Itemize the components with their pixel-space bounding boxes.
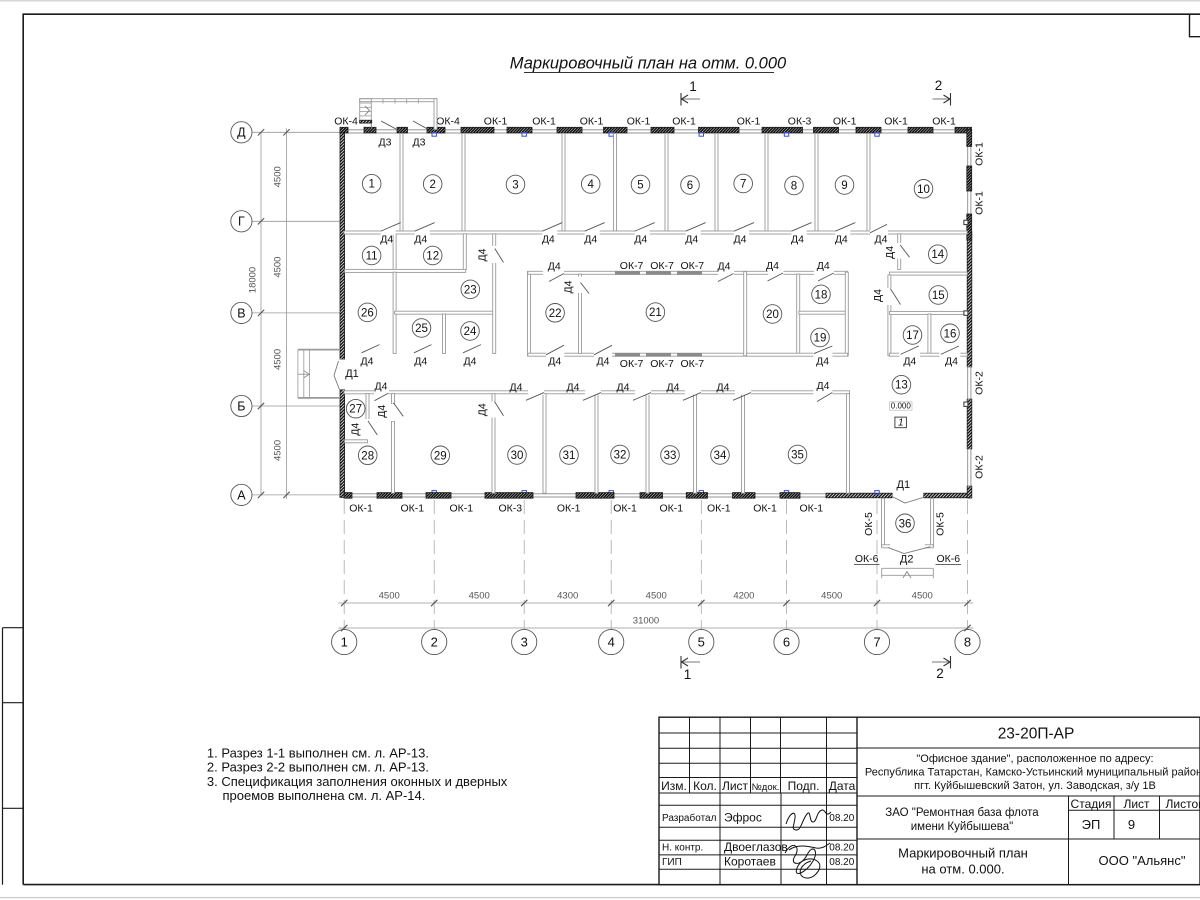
svg-text:ОК-3: ОК-3: [788, 115, 812, 127]
svg-text:Д4: Д4: [414, 355, 427, 367]
svg-text:9: 9: [1128, 817, 1135, 832]
svg-text:21: 21: [649, 307, 662, 319]
svg-text:Д1: Д1: [345, 368, 359, 380]
svg-text:Лист: Лист: [1123, 797, 1150, 811]
svg-text:Кол.: Кол.: [693, 779, 717, 793]
svg-text:Б: Б: [237, 399, 245, 413]
svg-text:ОК-1: ОК-1: [753, 503, 777, 515]
svg-text:22: 22: [549, 308, 562, 320]
svg-text:Изм.: Изм.: [661, 779, 687, 793]
svg-text:18: 18: [815, 289, 828, 301]
svg-text:Д4: Д4: [361, 355, 374, 367]
svg-text:Маркировочный план на отм. 0.0: Маркировочный план на отм. 0.000: [510, 55, 787, 73]
svg-text:7: 7: [873, 635, 880, 650]
svg-text:15: 15: [932, 290, 945, 302]
svg-text:Д4: Д4: [903, 356, 916, 368]
svg-text:4500: 4500: [273, 440, 284, 461]
svg-text:4300: 4300: [557, 591, 578, 602]
svg-text:ОК-1: ОК-1: [349, 503, 373, 515]
svg-text:4500: 4500: [273, 257, 284, 278]
svg-text:Д4: Д4: [414, 234, 427, 246]
svg-text:6: 6: [687, 180, 693, 192]
svg-text:23: 23: [464, 284, 477, 296]
svg-text:Д4: Д4: [617, 381, 630, 393]
svg-text:20: 20: [766, 309, 779, 321]
svg-text:проемов выполнена см. л. АР-14: проемов выполнена см. л. АР-14.: [223, 788, 426, 803]
svg-text:ОК-1: ОК-1: [974, 191, 986, 215]
svg-text:Эфрос: Эфрос: [724, 811, 762, 825]
svg-text:Д3: Д3: [413, 136, 426, 148]
svg-text:Н. контр.: Н. контр.: [662, 842, 703, 853]
svg-text:19: 19: [814, 333, 827, 345]
svg-text:Д4: Д4: [817, 380, 830, 392]
svg-text:Д: Д: [237, 126, 246, 140]
svg-text:28: 28: [361, 450, 374, 462]
svg-text:32: 32: [614, 450, 627, 462]
svg-text:Д4: Д4: [380, 234, 393, 246]
svg-text:Д4: Д4: [791, 234, 804, 246]
svg-text:ОК-1: ОК-1: [627, 115, 651, 127]
svg-text:1: 1: [898, 417, 904, 428]
svg-text:Д4: Д4: [464, 356, 477, 368]
svg-text:26: 26: [361, 307, 374, 319]
svg-text:ОК-1: ОК-1: [484, 115, 508, 127]
svg-text:Д4: Д4: [685, 234, 698, 246]
svg-text:Разработал: Разработал: [662, 812, 717, 824]
svg-text:4: 4: [587, 179, 594, 191]
svg-text:33: 33: [664, 450, 677, 462]
svg-text:Д4: Д4: [875, 234, 888, 246]
svg-text:№док.: №док.: [752, 782, 780, 793]
svg-text:ОК-2: ОК-2: [974, 455, 986, 479]
svg-text:2: 2: [429, 179, 435, 191]
svg-text:8: 8: [964, 635, 971, 650]
svg-text:Республика Татарстан, Камско-У: Республика Татарстан, Камско-Устьинский …: [865, 767, 1200, 779]
svg-text:Д2: Д2: [900, 554, 914, 566]
svg-text:ОК-6: ОК-6: [855, 553, 879, 565]
svg-text:18000: 18000: [248, 267, 259, 293]
svg-text:ОК-5: ОК-5: [935, 512, 947, 536]
svg-text:ОК-1: ОК-1: [799, 503, 823, 515]
svg-text:1. Разрез 1-1 выполнен см. л.: 1. Разрез 1-1 выполнен см. л. АР-13.: [207, 746, 429, 761]
svg-text:5: 5: [637, 180, 643, 192]
svg-text:Д4: Д4: [766, 260, 779, 272]
svg-text:ЭП: ЭП: [1082, 817, 1101, 832]
svg-text:8: 8: [791, 181, 797, 193]
svg-text:Д4: Д4: [817, 260, 830, 272]
svg-text:Стадия: Стадия: [1071, 797, 1112, 811]
svg-text:5: 5: [698, 635, 705, 650]
svg-text:Д4: Д4: [567, 381, 580, 393]
svg-text:1: 1: [689, 79, 697, 94]
svg-text:31000: 31000: [633, 616, 659, 627]
svg-text:ОК-2: ОК-2: [974, 371, 986, 395]
svg-text:ОК-1: ОК-1: [580, 115, 604, 127]
svg-text:4500: 4500: [912, 591, 933, 602]
svg-text:ООО "Альянс": ООО "Альянс": [1099, 853, 1186, 868]
svg-text:30: 30: [511, 450, 524, 462]
svg-text:ОК-1: ОК-1: [737, 115, 761, 127]
svg-text:ОК-1: ОК-1: [449, 503, 473, 515]
svg-text:"Офисное здание", расположенно: "Офисное здание", расположенное по адрес…: [916, 753, 1153, 765]
svg-text:13: 13: [895, 380, 908, 392]
svg-text:ОК-6: ОК-6: [936, 553, 960, 565]
svg-text:12: 12: [426, 251, 439, 263]
svg-text:ГИП: ГИП: [662, 857, 682, 868]
svg-text:2. Разрез 2-2 выполнен см. л.: 2. Разрез 2-2 выполнен см. л. АР-13.: [207, 760, 429, 775]
svg-text:24: 24: [464, 326, 477, 338]
svg-text:ОК-1: ОК-1: [400, 503, 424, 515]
svg-text:1: 1: [368, 179, 374, 191]
svg-text:Д4: Д4: [584, 234, 597, 246]
svg-text:Коротаев: Коротаев: [724, 855, 776, 869]
svg-text:ОК-1: ОК-1: [707, 503, 731, 515]
svg-text:ОК-1: ОК-1: [659, 503, 683, 515]
svg-text:4500: 4500: [646, 591, 667, 602]
svg-text:пгт. Куйбышевский Затон, ул. З: пгт. Куйбышевский Затон, ул. Заводская, …: [914, 780, 1156, 792]
svg-text:ОК-1: ОК-1: [557, 503, 581, 515]
svg-text:Подп.: Подп.: [788, 779, 820, 793]
svg-text:Д4: Д4: [945, 356, 958, 368]
svg-text:Д4: Д4: [597, 356, 610, 368]
svg-text:3. Спецификация заполнения око: 3. Спецификация заполнения оконных и две…: [207, 774, 508, 789]
svg-text:27: 27: [349, 404, 362, 416]
svg-text:Д4: Д4: [375, 381, 388, 393]
svg-text:на отм. 0.000.: на отм. 0.000.: [921, 862, 1004, 877]
svg-text:ОК-3: ОК-3: [498, 503, 522, 515]
svg-text:ОК-7: ОК-7: [620, 260, 644, 272]
svg-text:36: 36: [899, 518, 912, 530]
svg-text:ОК-1: ОК-1: [833, 115, 857, 127]
svg-text:Д3: Д3: [379, 136, 392, 148]
svg-text:4500: 4500: [273, 349, 284, 370]
svg-text:4200: 4200: [733, 591, 754, 602]
svg-text:0.000: 0.000: [891, 402, 912, 411]
svg-text:Д4: Д4: [548, 356, 561, 368]
svg-text:14: 14: [931, 249, 944, 261]
svg-text:Д4: Д4: [510, 381, 523, 393]
svg-text:Маркировочный план: Маркировочный план: [898, 846, 1028, 861]
svg-text:1: 1: [341, 635, 348, 650]
svg-text:Д4: Д4: [734, 234, 747, 246]
svg-text:ОК-1: ОК-1: [884, 115, 908, 127]
svg-text:имени Куйбышева": имени Куйбышева": [911, 821, 1014, 833]
svg-text:Д4: Д4: [634, 234, 647, 246]
svg-text:ОК-7: ОК-7: [650, 260, 674, 272]
svg-text:Двоеглазов: Двоеглазов: [724, 840, 788, 854]
svg-text:11: 11: [366, 251, 378, 263]
svg-text:ОК-7: ОК-7: [680, 358, 704, 370]
svg-text:ОК-7: ОК-7: [620, 358, 644, 370]
svg-text:Д4: Д4: [717, 381, 730, 393]
svg-text:35: 35: [791, 450, 804, 462]
svg-text:3: 3: [521, 635, 528, 650]
svg-text:08.20: 08.20: [829, 842, 854, 853]
svg-text:7: 7: [740, 179, 746, 191]
svg-text:3: 3: [512, 180, 518, 192]
svg-text:10: 10: [917, 184, 930, 196]
svg-text:ОК-5: ОК-5: [863, 512, 875, 536]
svg-text:16: 16: [944, 328, 957, 340]
svg-text:Д4: Д4: [884, 246, 896, 259]
svg-text:ЗАО "Ремонтная база флота: ЗАО "Ремонтная база флота: [885, 807, 1039, 819]
svg-text:4500: 4500: [821, 591, 842, 602]
svg-text:ОК-1: ОК-1: [532, 115, 556, 127]
svg-text:Д4: Д4: [835, 234, 848, 246]
svg-text:9: 9: [841, 180, 847, 192]
svg-text:1: 1: [684, 667, 692, 682]
svg-text:ОК-7: ОК-7: [650, 358, 674, 370]
svg-text:Д4: Д4: [477, 248, 489, 261]
svg-text:2: 2: [936, 666, 944, 681]
svg-text:В: В: [237, 306, 245, 320]
svg-text:ОК-1: ОК-1: [932, 115, 956, 127]
svg-text:4500: 4500: [273, 166, 284, 187]
svg-text:Д4: Д4: [476, 403, 488, 416]
svg-text:6: 6: [783, 635, 790, 650]
svg-text:25: 25: [415, 323, 428, 335]
svg-text:4: 4: [608, 635, 615, 650]
svg-text:ОК-1: ОК-1: [974, 142, 986, 166]
svg-text:34: 34: [714, 450, 727, 462]
svg-text:23-20П-АР: 23-20П-АР: [998, 726, 1075, 743]
svg-text:Д4: Д4: [563, 280, 575, 293]
svg-text:Д4: Д4: [349, 423, 361, 436]
svg-text:ОК-1: ОК-1: [672, 115, 696, 127]
svg-text:Д4: Д4: [667, 381, 680, 393]
svg-text:08.20: 08.20: [829, 857, 854, 868]
svg-text:17: 17: [906, 330, 919, 342]
svg-text:Д4: Д4: [542, 234, 555, 246]
svg-text:Д4: Д4: [718, 260, 731, 272]
svg-text:Листов: Листов: [1166, 797, 1200, 811]
svg-text:Г: Г: [238, 215, 245, 229]
svg-text:4500: 4500: [379, 591, 400, 602]
svg-text:ОК-1: ОК-1: [613, 503, 637, 515]
svg-text:Д1: Д1: [897, 479, 911, 491]
svg-text:Д4: Д4: [872, 289, 884, 302]
svg-text:ОК-7: ОК-7: [680, 260, 704, 272]
svg-text:Д4: Д4: [548, 260, 561, 272]
svg-text:Лист: Лист: [722, 779, 749, 793]
svg-text:4500: 4500: [469, 591, 490, 602]
svg-text:Д4: Д4: [376, 405, 388, 418]
svg-text:08.20: 08.20: [829, 813, 854, 824]
svg-text:ОК-4: ОК-4: [334, 115, 358, 127]
svg-text:31: 31: [563, 450, 576, 462]
svg-text:29: 29: [434, 450, 447, 462]
svg-text:Дата: Дата: [829, 779, 856, 793]
svg-text:Д4: Д4: [816, 356, 829, 368]
svg-text:2: 2: [935, 78, 943, 93]
svg-text:2: 2: [431, 635, 438, 650]
svg-text:ОК-4: ОК-4: [436, 115, 460, 127]
svg-text:А: А: [237, 488, 246, 502]
